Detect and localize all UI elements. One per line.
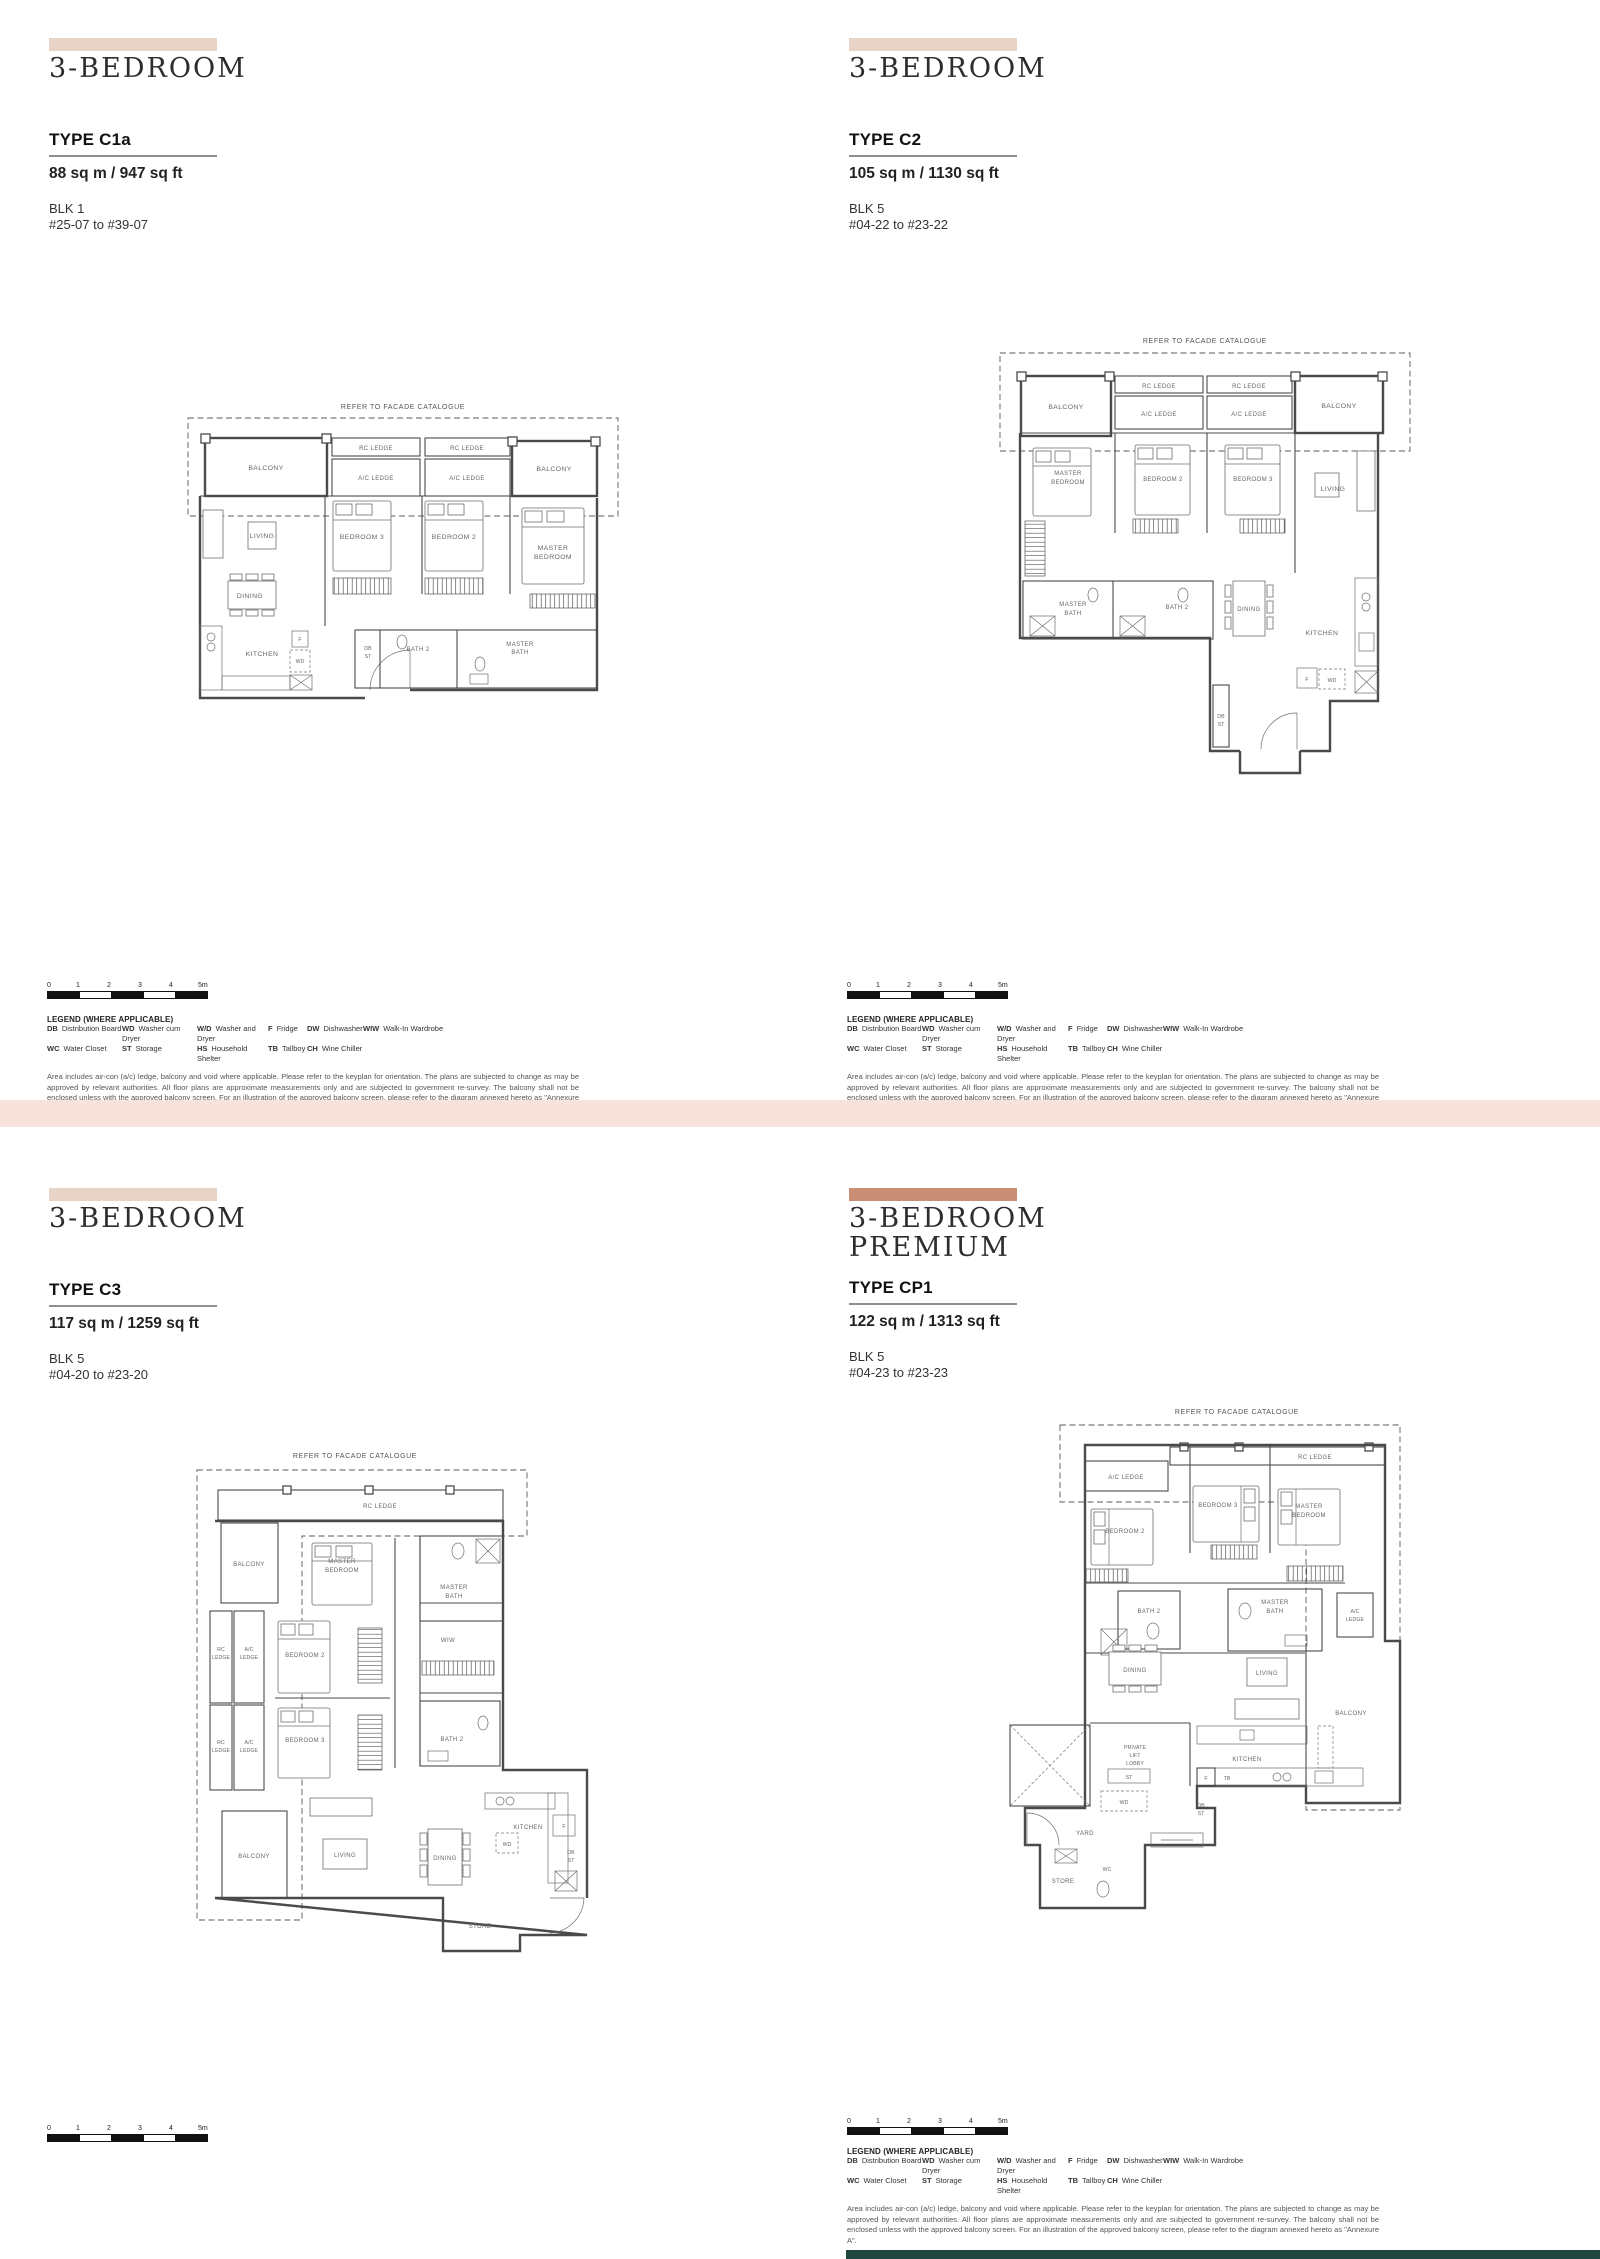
bed-bedroom3 [1193,1486,1259,1559]
room-label-living: LIVING [334,1853,356,1859]
room-label-dining: DINING [237,593,263,600]
svg-text:A/C: A/C [245,1740,254,1746]
label-fridge: F [298,637,301,643]
svg-text:RC LEDGE: RC LEDGE [359,446,393,452]
unit-area: 105 sq m / 1130 sq ft [849,165,1047,183]
room-label-masterbath1: MASTER [1059,602,1087,608]
scale-bar: 0 1 2 3 4 5m [47,982,247,1000]
label-db: DB [567,1850,575,1856]
bed-master [1025,448,1091,576]
kitchen-fixtures [200,626,312,690]
room-label-lobby1: PRIVATE [1124,1745,1147,1751]
bed-master [312,1543,372,1605]
svg-text:BALCONY: BALCONY [1048,404,1083,411]
section-band [49,38,217,51]
label-wd: WD [1120,1800,1129,1806]
balcony-right: BALCONY [1291,372,1387,433]
ledges-1: RC LEDGE A/C LEDGE [332,438,420,496]
svg-text:A/C LEDGE: A/C LEDGE [1231,412,1267,418]
label-st: ST [1198,1811,1206,1817]
facade-note: REFER TO FACADE CATALOGUE [1143,338,1267,345]
panel-header-cp1: 3-BEDROOMPREMIUM TYPE CP1 122 sq m / 131… [849,1188,1047,1380]
svg-text:RC: RC [217,1647,225,1653]
svg-text:RC LEDGE: RC LEDGE [363,1504,397,1510]
section-title: 3-BEDROOMPREMIUM [849,1204,1047,1262]
svg-text:A/C LEDGE: A/C LEDGE [1108,1475,1144,1481]
room-label-bedroom2: BEDROOM 2 [432,534,476,541]
rc-ledge-top: RC LEDGE [218,1486,503,1520]
room-label-masterbath2: BATH [1064,611,1081,617]
room-label-acledge2: LEDGE [1346,1617,1365,1623]
label-fridge: F [1305,677,1308,683]
unit-area: 122 sq m / 1313 sq ft [849,1313,1047,1331]
ledges-left-upper: RC LEDGE A/C LEDGE [210,1611,264,1703]
bed-bedroom2 [1133,445,1190,533]
room-label-masterbath2: BATH [511,650,528,656]
legend-row-1: DBDistribution Board WDWasher cum Dryer … [847,2156,1379,2176]
panel-header-c2: 3-BEDROOM TYPE C2 105 sq m / 1130 sq ft … [849,38,1047,232]
yard-fixtures [1055,1833,1203,1897]
room-label-master: MASTER [538,545,569,552]
room-label-yard: YARD [1076,1831,1094,1837]
lift-shaft [1010,1725,1090,1806]
svg-text:LEDGE: LEDGE [212,1748,231,1754]
room-label-master-bedroom: BEDROOM [534,554,572,561]
room-label-master-bedroom: BEDROOM [325,1568,359,1574]
label-fridge: F [562,1824,565,1830]
room-label-living: LIVING [250,533,275,540]
label-tb: TB [1224,1776,1231,1782]
room-label-bath2: BATH 2 [407,647,430,653]
bed-master [1278,1489,1343,1581]
ledges-left-lower: RC LEDGE A/C LEDGE [210,1705,264,1790]
unit-block: BLK 1 [49,201,84,216]
unit-area: 117 sq m / 1259 sq ft [49,1315,247,1333]
unit-type: TYPE CP1 [849,1278,1017,1305]
room-label-bedroom2: BEDROOM 2 [1105,1529,1145,1535]
living-furniture [1235,1658,1299,1719]
living-furniture [1315,451,1375,511]
svg-text:A/C LEDGE: A/C LEDGE [449,476,485,482]
room-label-bedroom2: BEDROOM 2 [1143,477,1183,483]
room-label-master: MASTER [1295,1504,1323,1510]
room-label-bath2: BATH 2 [1166,605,1189,611]
room-label-master: MASTER [1054,471,1082,477]
section-title: 3-BEDROOM [49,1204,247,1233]
scale-bar: 0 1 2 3 4 5m [847,2118,1047,2132]
unit-block-floors: BLK 5 #04-22 to #23-22 [849,201,1047,232]
floorplan-brochure-page: 3-BEDROOM TYPE C1a 88 sq m / 947 sq ft B… [0,0,1600,2259]
ac-ledge-topleft: A/C LEDGE [1085,1461,1168,1491]
room-label-master-bedroom: BEDROOM [1292,1513,1326,1519]
balcony-right: BALCONY [508,437,600,496]
label-st: ST [365,654,373,660]
svg-text:RC LEDGE: RC LEDGE [1142,384,1176,390]
section-band [849,1188,1017,1201]
svg-text:RC LEDGE: RC LEDGE [450,446,484,452]
label-st: ST [1218,722,1226,728]
label-wc: WC [1103,1867,1112,1873]
room-label-masterbath2: BATH [445,1594,462,1600]
svg-text:RC LEDGE: RC LEDGE [1232,384,1266,390]
legend-row-2: WCWater Closet STStorage HSHousehold She… [47,1044,579,1064]
facade-note: REFER TO FACADE CATALOGUE [1175,1409,1299,1416]
room-label-kitchen: KITCHEN [1306,630,1339,637]
room-label-bedroom2: BEDROOM 2 [285,1653,325,1659]
floorplan-cp1: REFER TO FACADE CATALOGUE RC LEDGE A/C L… [985,1403,1445,2023]
bath-fixtures [1030,588,1188,636]
facade-note: REFER TO FACADE CATALOGUE [341,404,465,411]
legend-row-2: WCWater Closet STStorage HSHousehold She… [847,2176,1379,2196]
panel-header-c3: 3-BEDROOM TYPE C3 117 sq m / 1259 sq ft … [49,1188,247,1382]
legend-title: LEGEND (WHERE APPLICABLE) [847,2147,1379,2156]
room-label-kitchen: KITCHEN [513,1825,542,1831]
room-label-living: LIVING [1256,1671,1278,1677]
unit-floors: #25-07 to #39-07 [49,217,148,232]
svg-text:BALCONY: BALCONY [248,465,283,472]
unit-type: TYPE C1a [49,130,217,157]
legend-row-1: DBDistribution Board WDWasher cum Dryer … [47,1024,579,1044]
room-label-store: STORE [1052,1879,1075,1885]
rc-ledge-top: RC LEDGE [1170,1443,1385,1465]
label-st-strip: ST [1126,1775,1134,1781]
label-wd: WD [296,659,305,665]
scale-bar: 0 1 2 3 4 5m [847,982,1047,1000]
svg-text:BALCONY: BALCONY [1321,403,1356,410]
room-label-wiw: WIW [441,1638,455,1644]
unit-block: BLK 5 [49,1351,84,1366]
kitchen-fixtures [1197,1726,1363,1786]
unit-block-floors: BLK 1 #25-07 to #39-07 [49,201,247,232]
room-label-store: STORE [469,1924,492,1930]
room-label-bedroom3: BEDROOM 3 [1233,477,1273,483]
bed-bedroom3 [1225,445,1285,533]
label-db: DB [1217,714,1225,720]
svg-text:BALCONY: BALCONY [233,1562,264,1568]
panel-header-c1a: 3-BEDROOM TYPE C1a 88 sq m / 947 sq ft B… [49,38,247,232]
room-label-living: LIVING [1321,486,1346,493]
section-band [49,1188,217,1201]
svg-text:RC: RC [217,1740,225,1746]
bed-bedroom2 [425,501,483,594]
label-wd: WD [503,1842,512,1848]
bath-fixtures [397,635,488,684]
svg-text:A/C LEDGE: A/C LEDGE [1141,412,1177,418]
legend-row-1: DBDistribution Board WDWasher cum Dryer … [847,1024,1379,1044]
bed-bedroom3 [333,501,391,594]
section-band [849,38,1017,51]
room-label-lobby2: LIFT [1129,1753,1141,1759]
label-wd: WD [1328,678,1337,684]
ledges-1: RC LEDGE A/C LEDGE [1115,376,1203,429]
svg-text:LEDGE: LEDGE [240,1655,259,1661]
room-label-master-bedroom: BEDROOM [1051,480,1085,486]
svg-text:A/C: A/C [245,1647,254,1653]
balcony-left: BALCONY [201,434,331,496]
page-divider-band [0,1100,1600,1127]
label-db: DB [1197,1803,1205,1809]
balcony-planter [1318,1726,1333,1768]
unit-type: TYPE C2 [849,130,1017,157]
kitchen-fixtures [485,1793,577,1891]
svg-text:RC LEDGE: RC LEDGE [1298,1455,1332,1461]
room-label-bedroom3: BEDROOM 3 [340,534,384,541]
room-label-bedroom3: BEDROOM 3 [1198,1503,1238,1509]
room-label-masterbath1: MASTER [1261,1600,1289,1606]
floorplan-c2: REFER TO FACADE CATALOGUE BALCONY RC LED… [985,333,1425,793]
unit-floors: #04-22 to #23-22 [849,217,948,232]
unit-floors: #04-20 to #23-20 [49,1367,148,1382]
room-label-masterbath2: BATH [1266,1609,1283,1615]
scale-bar-c3: 0 1 2 3 4 5m [47,2125,247,2143]
wiw-wardrobe [422,1661,494,1675]
room-label-kitchen: KITCHEN [246,651,279,658]
master-bath-fixtures [452,1539,500,1563]
ledges-2: RC LEDGE A/C LEDGE [425,438,510,496]
label-st: ST [568,1858,576,1864]
legend-title: LEGEND (WHERE APPLICABLE) [847,1015,1379,1024]
room-label-master: MASTER [328,1559,356,1565]
legend-row-2: WCWater Closet STStorage HSHousehold She… [847,1044,1379,1064]
footer-accent-bar [846,2250,1600,2259]
unit-area: 88 sq m / 947 sq ft [49,165,247,183]
room-label-acledge1: A/C [1351,1609,1360,1615]
room-label-masterbath1: MASTER [440,1585,468,1591]
balcony-bottomleft: BALCONY [222,1811,287,1898]
balcony-left: BALCONY [1017,372,1114,436]
room-label-lobby3: LOBBY [1126,1761,1144,1767]
svg-text:BALCONY: BALCONY [238,1854,269,1860]
unit-block: BLK 5 [849,1349,884,1364]
facade-note: REFER TO FACADE CATALOGUE [293,1453,417,1460]
room-label-bath2: BATH 2 [1138,1609,1161,1615]
unit-block-floors: BLK 5 #04-23 to #23-23 [849,1349,1047,1380]
label-db: DB [364,646,372,652]
room-label-bath2: BATH 2 [441,1737,464,1743]
room-label-kitchen: KITCHEN [1232,1757,1261,1763]
unit-block: BLK 5 [849,201,884,216]
svg-text:LEDGE: LEDGE [240,1748,259,1754]
disclaimer: Area includes air-con (a/c) ledge, balco… [847,2204,1379,2246]
section-title: 3-BEDROOM [849,54,1047,83]
legend-block-cp1: 0 1 2 3 4 5m LEGEND (WHERE APPLICABLE) D… [847,2118,1379,2254]
ledges-2: RC LEDGE A/C LEDGE [1207,376,1292,429]
floorplan-c3: REFER TO FACADE CATALOGUE RC LEDGE BALCO… [190,1443,650,2013]
label-fridge: F [1204,1776,1207,1782]
unit-floors: #04-23 to #23-23 [849,1365,948,1380]
section-title: 3-BEDROOM [49,54,247,83]
unit-type: TYPE C3 [49,1280,217,1307]
svg-text:LEDGE: LEDGE [212,1655,231,1661]
room-label-masterbath1: MASTER [506,642,534,648]
floorplan-c1a: REFER TO FACADE CATALOGUE BALCONY RC LED… [170,398,640,713]
svg-text:A/C LEDGE: A/C LEDGE [358,476,394,482]
balcony-topleft: BALCONY [221,1523,278,1603]
bed-bedroom2 [1086,1509,1153,1582]
unit-outline [215,1521,587,1951]
legend-title: LEGEND (WHERE APPLICABLE) [47,1015,579,1024]
room-label-bedroom3: BEDROOM 3 [285,1738,325,1744]
unit-block-floors: BLK 5 #04-20 to #23-20 [49,1351,247,1382]
room-label-dining: DINING [1123,1668,1146,1674]
room-label-dining: DINING [1237,607,1260,613]
svg-text:BALCONY: BALCONY [536,466,571,473]
room-label-balcony: BALCONY [1335,1711,1366,1717]
room-label-dining: DINING [433,1856,456,1862]
